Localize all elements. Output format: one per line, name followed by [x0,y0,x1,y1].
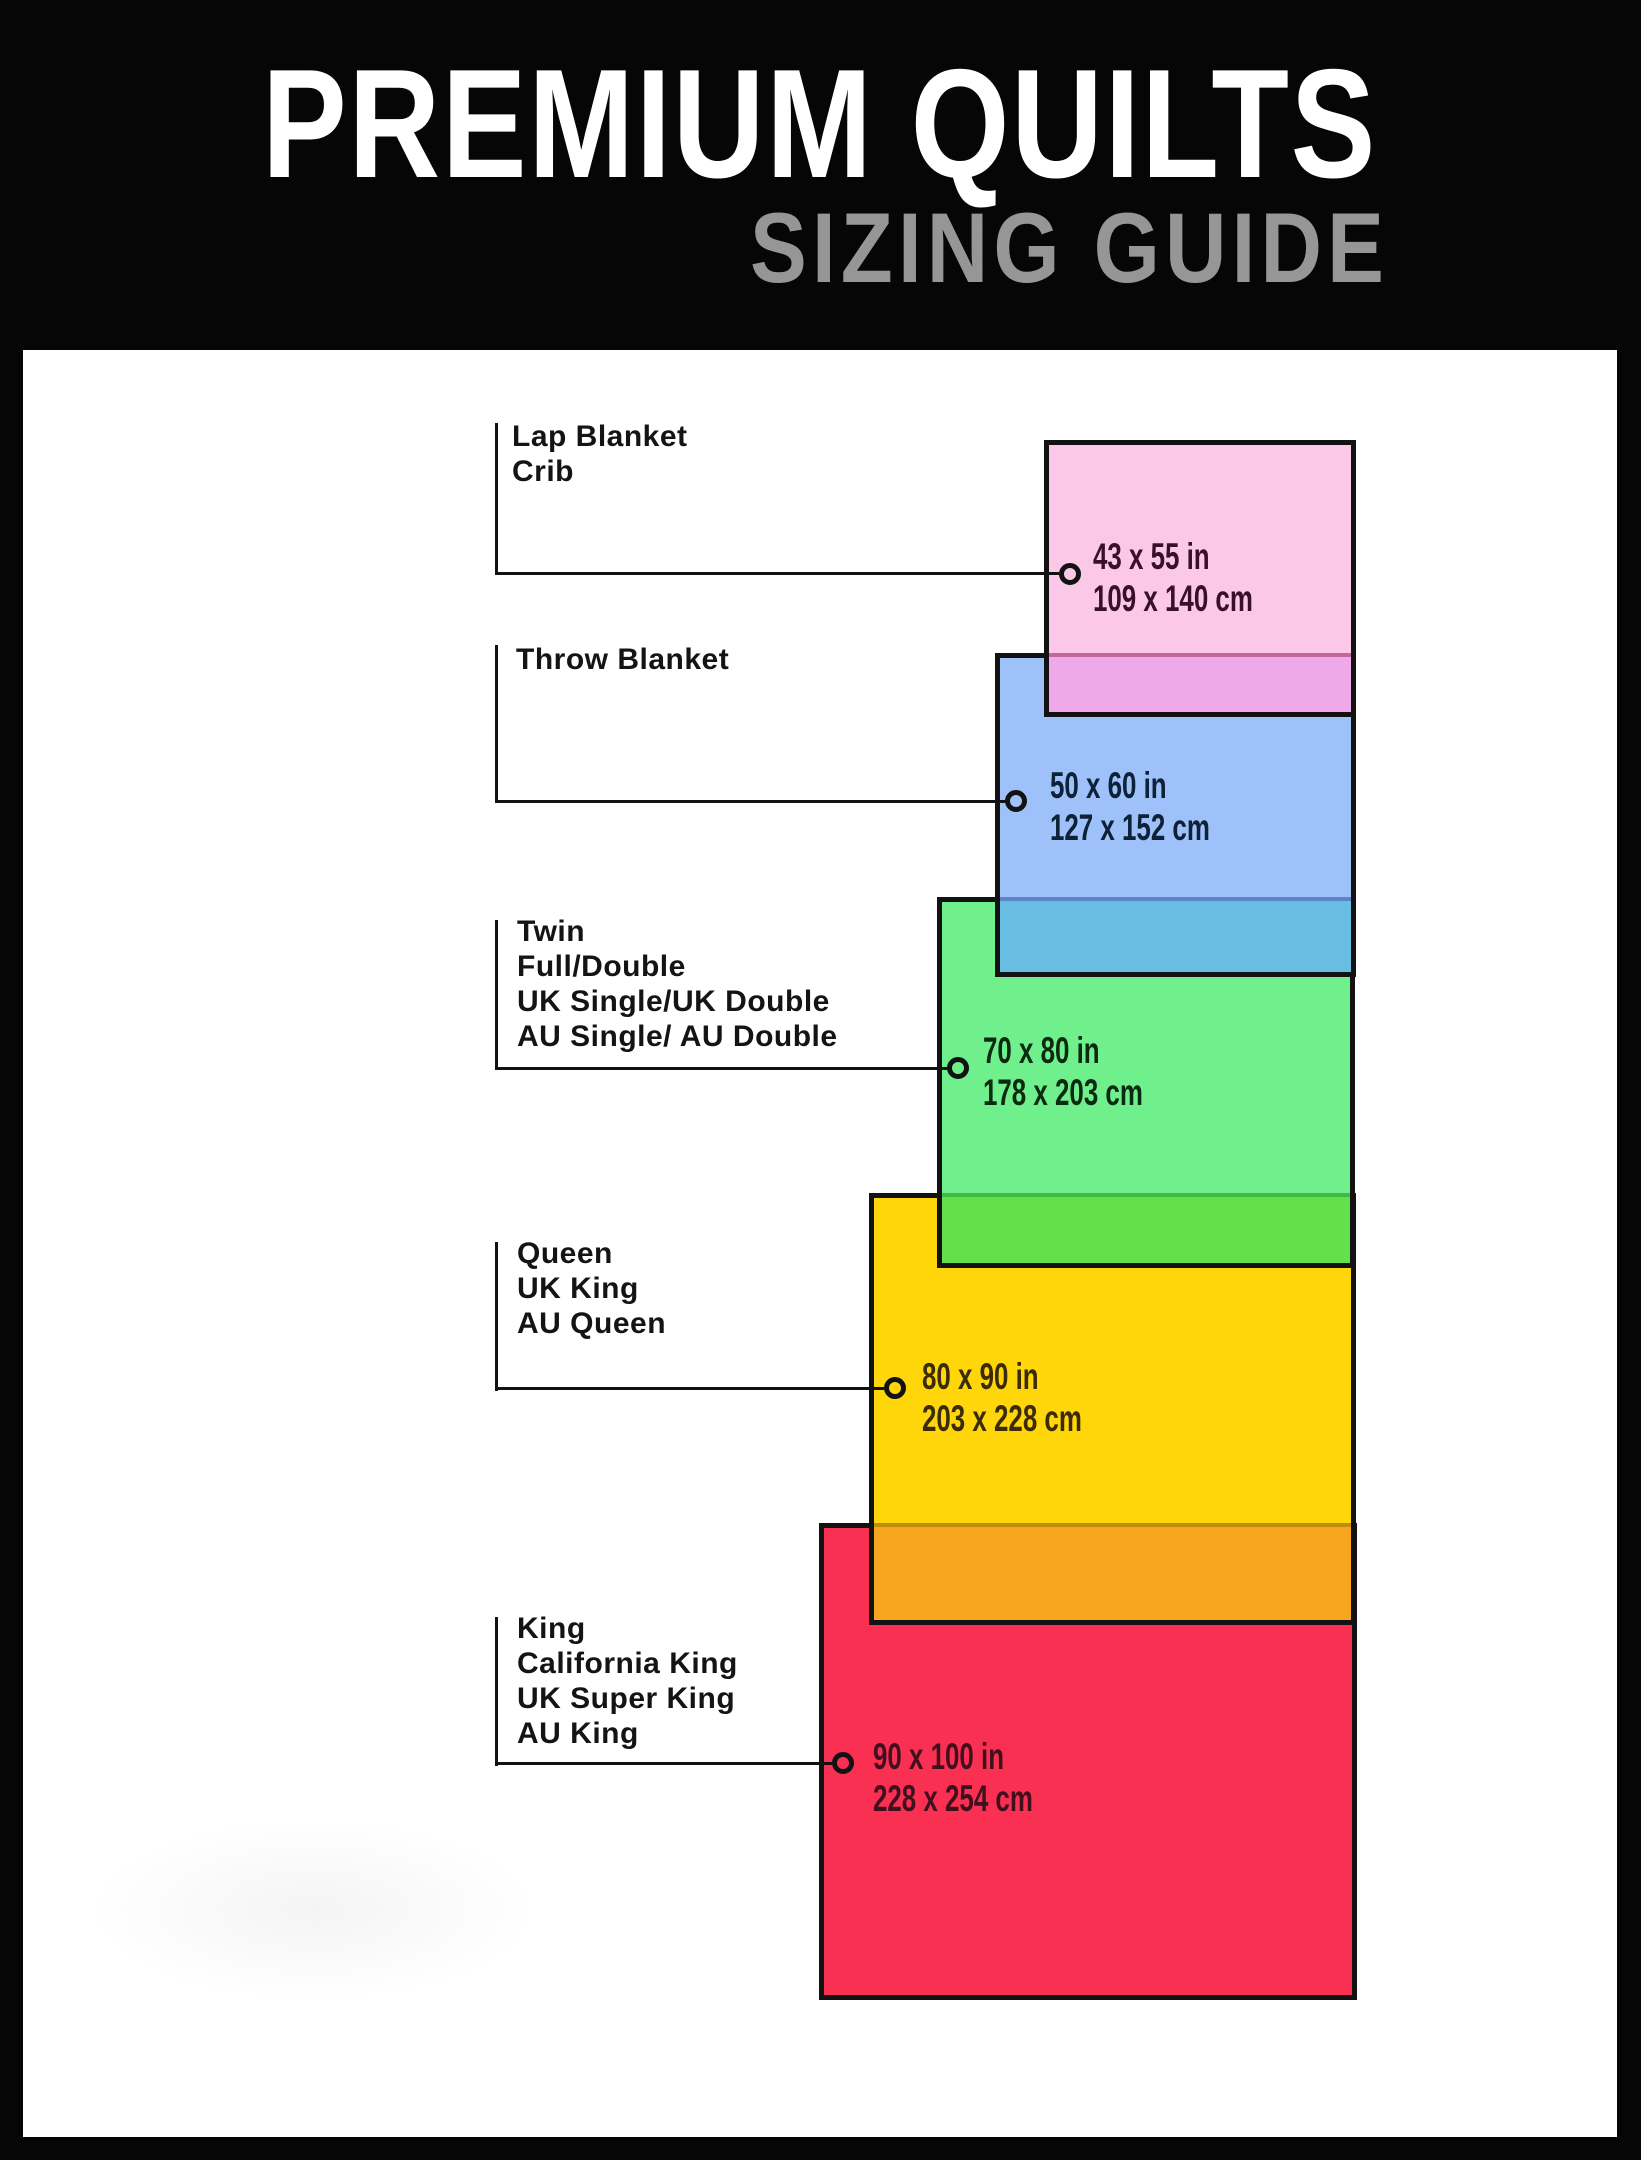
label-twin-full-double: Twin Full/Double UK Single/UK Double AU … [517,914,838,1054]
size-annotation-queen: 80 x 90 in 203 x 228 cm [922,1356,1082,1440]
callout-vertical-line [495,645,498,803]
callout-vertical-line [495,1242,498,1391]
overlap-band-queen-over-king [874,1523,1351,1620]
callout-vertical-line [495,423,498,575]
callout-ring-marker [1059,563,1081,585]
label-line: AU King [517,1716,738,1751]
callout-ring-marker [832,1752,854,1774]
label-line: Throw Blanket [516,642,729,677]
size-imperial: 90 x 100 in [873,1736,1033,1778]
callout-horizontal-line [495,1762,832,1765]
callout-vertical-line [495,920,498,1070]
size-annotation-lap-blanket-crib: 43 x 55 in 109 x 140 cm [1093,536,1253,620]
size-annotation-twin-full-double: 70 x 80 in 178 x 203 cm [983,1030,1143,1114]
overlap-band-twin-over-queen [942,1193,1350,1263]
label-queen: Queen UK King AU Queen [517,1236,666,1341]
label-line: UK Single/UK Double [517,984,838,1019]
size-metric: 127 x 152 cm [1050,807,1210,849]
label-line: California King [517,1646,738,1681]
page-title: PREMIUM QUILTS [262,44,1377,204]
label-line: AU Single/ AU Double [517,1019,838,1054]
label-throw-blanket: Throw Blanket [516,642,729,677]
label-line: Lap Blanket [512,419,688,454]
callout-horizontal-line [495,1067,947,1070]
label-line: UK King [517,1271,666,1306]
overlap-band-lap-over-throw [1049,653,1351,712]
size-imperial: 80 x 90 in [922,1356,1082,1398]
size-annotation-throw-blanket: 50 x 60 in 127 x 152 cm [1050,765,1210,849]
label-line: Twin [517,914,838,949]
quilt-rect-lap-blanket-crib: 43 x 55 in 109 x 140 cm [1044,440,1356,717]
callout-ring-marker [884,1377,906,1399]
callout-horizontal-line [495,1387,884,1390]
size-imperial: 70 x 80 in [983,1030,1143,1072]
size-imperial: 43 x 55 in [1093,536,1253,578]
callout-horizontal-line [495,800,1005,803]
label-line: AU Queen [517,1306,666,1341]
callout-ring-marker [947,1057,969,1079]
label-line: Crib [512,454,688,489]
label-king: King California King UK Super King AU Ki… [517,1611,738,1751]
page-subtitle: SIZING GUIDE [750,196,1389,300]
size-metric: 203 x 228 cm [922,1398,1082,1440]
label-line: UK Super King [517,1681,738,1716]
callout-horizontal-line [495,572,1059,575]
callout-ring-marker [1005,790,1027,812]
label-line: Full/Double [517,949,838,984]
overlap-band-throw-over-twin [1000,897,1351,972]
size-metric: 109 x 140 cm [1093,578,1253,620]
label-line: King [517,1611,738,1646]
infographic-canvas: PREMIUM QUILTS SIZING GUIDE 43 x 55 in 1… [0,0,1641,2160]
size-imperial: 50 x 60 in [1050,765,1210,807]
size-metric: 178 x 203 cm [983,1072,1143,1114]
label-lap-blanket-crib: Lap Blanket Crib [512,419,688,489]
size-metric: 228 x 254 cm [873,1778,1033,1820]
callout-vertical-line [495,1617,498,1766]
label-line: Queen [517,1236,666,1271]
size-annotation-king: 90 x 100 in 228 x 254 cm [873,1736,1033,1820]
